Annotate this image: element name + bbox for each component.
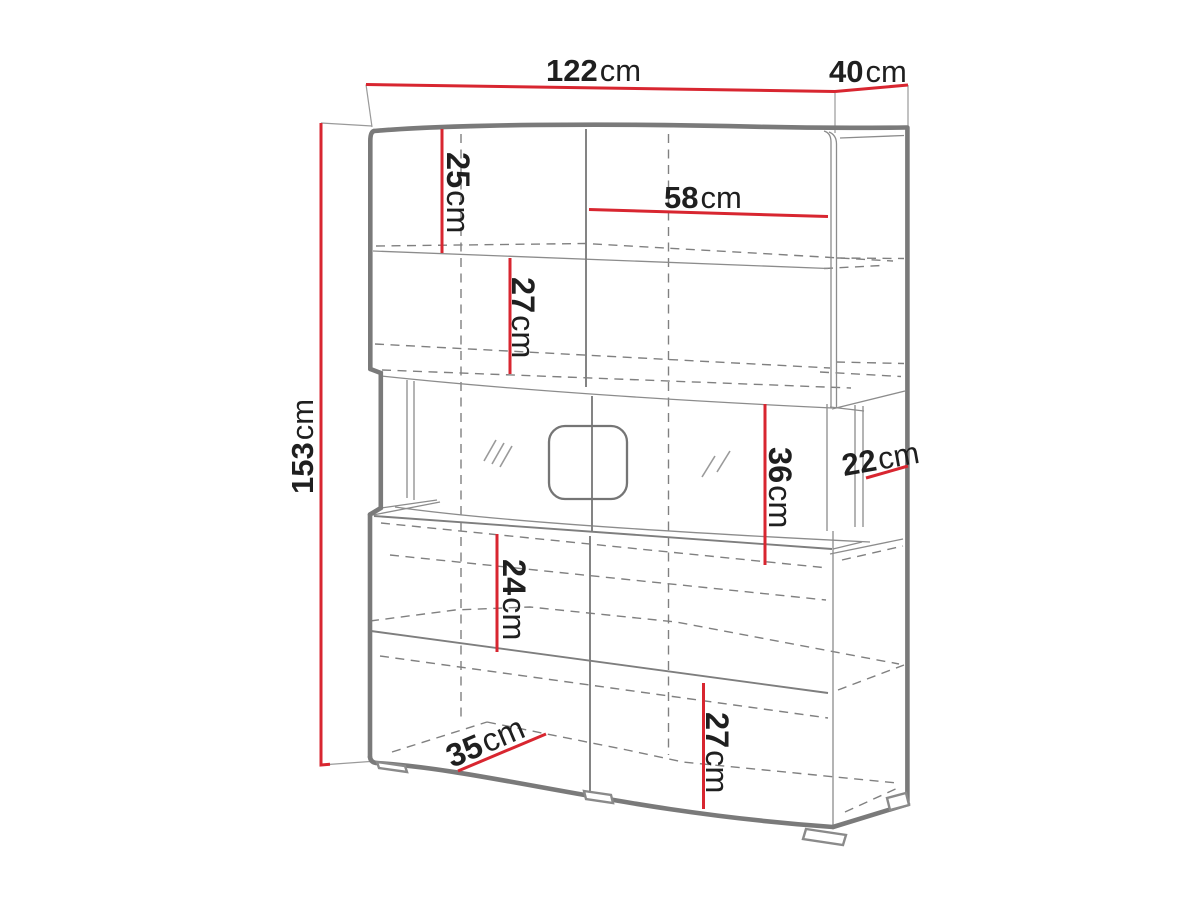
svg-text:58cm: 58cm [664, 180, 742, 215]
svg-text:24cm: 24cm [496, 559, 532, 640]
svg-text:153cm: 153cm [285, 399, 320, 494]
svg-text:40cm: 40cm [829, 54, 907, 89]
svg-text:27cm: 27cm [505, 277, 541, 358]
svg-text:25cm: 25cm [440, 152, 476, 233]
svg-text:122cm: 122cm [546, 53, 641, 88]
svg-text:36cm: 36cm [762, 447, 798, 528]
svg-text:27cm: 27cm [699, 712, 735, 793]
